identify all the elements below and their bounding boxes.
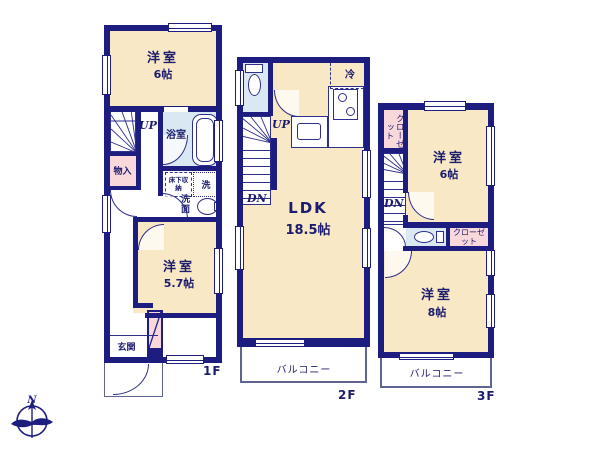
window-2f-left-lower bbox=[235, 226, 244, 270]
toilet-2f-bowl-icon bbox=[248, 74, 261, 96]
window-3f-right-mid bbox=[486, 250, 495, 276]
stairs-1f-up-label: UP bbox=[139, 119, 157, 132]
laundry-label: 洗 bbox=[196, 178, 216, 190]
wall-1f-room57-top bbox=[133, 217, 222, 222]
room-3f-western8-name: 洋室 bbox=[406, 285, 468, 301]
bathtub-inner bbox=[196, 118, 214, 162]
wall-2f-right bbox=[364, 57, 370, 347]
balcony-3f-label: バルコニー bbox=[406, 366, 468, 379]
underfloor-storage-label: 床下収納 bbox=[167, 177, 190, 192]
room-3f-western6-name: 洋室 bbox=[418, 148, 480, 164]
entrance-label: 玄関 bbox=[111, 340, 142, 352]
balcony-3f-sliding-door bbox=[399, 353, 454, 360]
window-3f-right-upper bbox=[486, 126, 495, 186]
wall-1f-bottom bbox=[104, 357, 222, 363]
compass-icon: N bbox=[8, 392, 56, 446]
floorplan-page: 洋室 6帖 浴室 物入 床下収納 洗 洗面 洋室 5.7帖 玄関 UP 1F bbox=[0, 0, 600, 450]
stove-burner-1 bbox=[338, 93, 347, 102]
wall-1f-room6-bottom bbox=[104, 106, 222, 112]
window-1f-bath-right bbox=[214, 120, 223, 162]
sink-icon bbox=[297, 123, 321, 140]
sink-counter bbox=[291, 116, 328, 148]
stove-burner-2 bbox=[346, 107, 355, 116]
room-2f-ldk-name: LDK bbox=[276, 199, 340, 217]
wall-2f-top bbox=[237, 57, 370, 63]
floor-2f-label: 2F bbox=[338, 388, 357, 402]
wall-2f-toilet-right bbox=[268, 60, 273, 116]
balcony-2f-label: バルコニー bbox=[272, 362, 336, 375]
stairs-2f-up-label: UP bbox=[272, 118, 290, 131]
stairs-3f-dn-label: DN bbox=[384, 197, 404, 210]
window-2f-right-lower bbox=[362, 228, 371, 268]
wall-1f-shoe-stub bbox=[147, 348, 163, 360]
stairs-2f-winder-lines bbox=[241, 117, 272, 143]
wall-2f-stairs-right bbox=[271, 138, 277, 190]
balcony-2f-sliding-door bbox=[255, 339, 305, 347]
washroom-label: 洗面 bbox=[179, 195, 192, 216]
wall-1f-room57-left bbox=[133, 222, 138, 308]
stairs-2f-dn-label: DN bbox=[247, 192, 267, 205]
door-opening-1f-room6 bbox=[164, 107, 188, 112]
wall-1f-bath-left bbox=[158, 112, 163, 196]
closet-3f-lower-label: クローゼット bbox=[450, 228, 488, 246]
room-2f-ldk-size: 18.5帖 bbox=[276, 221, 340, 236]
wall-1f-bath-bottom bbox=[158, 166, 222, 171]
room-1f-storage-label: 物入 bbox=[108, 164, 137, 176]
window-2f-right-upper bbox=[362, 150, 371, 198]
window-1f-room57-right bbox=[214, 248, 223, 294]
room-1f-western57-size: 5.7帖 bbox=[148, 276, 210, 290]
window-3f-right-lower bbox=[486, 294, 495, 328]
hall-door-arc-1f bbox=[110, 190, 137, 217]
floor-3f-label: 3F bbox=[477, 389, 496, 403]
window-1f-room6-left bbox=[102, 55, 111, 95]
stairs-1f-winder-lines bbox=[111, 109, 137, 153]
compass-north-label: N bbox=[26, 395, 37, 406]
toilet-2f-tank-icon bbox=[245, 64, 263, 73]
entrance-step-line bbox=[110, 335, 158, 336]
fridge-label: 冷 bbox=[338, 67, 362, 79]
room-3f-western8-size: 8帖 bbox=[406, 305, 468, 319]
window-1f-hall-left bbox=[102, 195, 111, 233]
wall-1f-storage-top bbox=[104, 152, 141, 156]
room-1f-western6-size: 6帖 bbox=[128, 67, 198, 81]
toilet-3f-bowl-icon bbox=[414, 231, 434, 243]
toilet-3f-tank-icon bbox=[436, 231, 444, 243]
wall-1f-storage-bottom bbox=[104, 186, 141, 190]
floor-1f-label: 1F bbox=[203, 364, 222, 378]
stove-icon bbox=[333, 89, 358, 120]
window-3f-top bbox=[424, 101, 466, 111]
room-1f-bath-label: 浴室 bbox=[161, 127, 191, 139]
room-3f-western6-size: 6帖 bbox=[418, 167, 480, 181]
stairs-1f bbox=[110, 108, 136, 152]
window-1f-bottom bbox=[166, 355, 204, 364]
window-1f-room6-top bbox=[168, 23, 212, 32]
closet-3f-upper-label: クローゼット bbox=[382, 112, 406, 150]
window-2f-toilet-left bbox=[235, 70, 244, 106]
toilet-3f-door-arc bbox=[384, 227, 406, 247]
wall-2f-toilet-bottom bbox=[240, 112, 273, 116]
room-1f-western6-name: 洋室 bbox=[128, 48, 198, 64]
wall-3f-stairs-right-upper bbox=[403, 148, 408, 193]
room-1f-western57-name: 洋室 bbox=[148, 257, 210, 273]
wall-1f-room57-bottom bbox=[145, 313, 222, 318]
wall-1f-room57-jog bbox=[133, 303, 153, 308]
